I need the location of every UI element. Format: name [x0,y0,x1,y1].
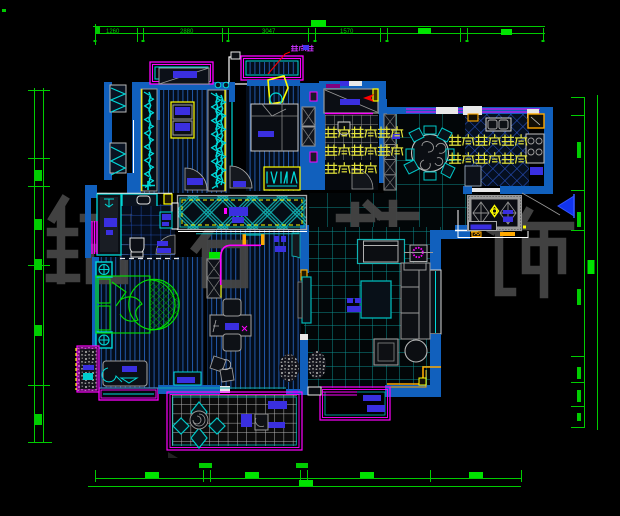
svg-text:2880: 2880 [180,29,194,35]
svg-text:1570: 1570 [340,29,354,35]
svg-text:1260: 1260 [106,29,120,35]
svg-text:3047: 3047 [262,29,276,35]
